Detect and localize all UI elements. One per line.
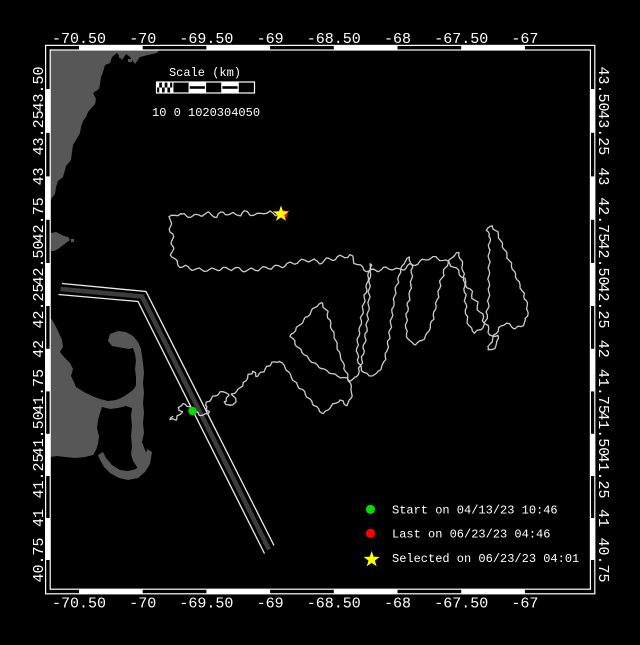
svg-text:-67.50: -67.50	[434, 596, 488, 613]
svg-text:42.75: 42.75	[594, 197, 611, 242]
svg-text:-70.50: -70.50	[52, 596, 106, 613]
svg-text:-67: -67	[511, 596, 538, 613]
svg-text:42.25: 42.25	[594, 283, 611, 328]
svg-text:42.25: 42.25	[31, 283, 48, 328]
svg-text:-68.50: -68.50	[307, 596, 361, 613]
svg-text:42: 42	[594, 340, 611, 358]
svg-text:Start on 04/13/23 10:46: Start on 04/13/23 10:46	[392, 504, 558, 518]
svg-text:41.25: 41.25	[594, 453, 611, 498]
svg-text:40.75: 40.75	[594, 537, 611, 582]
svg-text:41.75: 41.75	[594, 369, 611, 414]
svg-text:Selected on 06/23/23 04:01: Selected on 06/23/23 04:01	[392, 552, 579, 566]
svg-text:41: 41	[594, 509, 611, 527]
svg-text:-70: -70	[129, 596, 156, 613]
svg-text:43: 43	[594, 167, 611, 185]
svg-text:-67.50: -67.50	[434, 31, 488, 48]
svg-text:42: 42	[31, 340, 48, 358]
svg-text:42.75: 42.75	[31, 197, 48, 242]
svg-text:41.50: 41.50	[594, 411, 611, 456]
svg-text:43.50: 43.50	[594, 66, 611, 111]
svg-text:-69: -69	[257, 596, 284, 613]
svg-text:43.25: 43.25	[594, 110, 611, 155]
svg-text:Scale (km): Scale (km)	[169, 66, 241, 80]
svg-text:41.75: 41.75	[31, 369, 48, 414]
svg-text:-68: -68	[384, 31, 411, 48]
svg-text:41.50: 41.50	[31, 411, 48, 456]
svg-text:-67: -67	[511, 31, 538, 48]
svg-text:-69: -69	[257, 31, 284, 48]
svg-text:43.25: 43.25	[31, 110, 48, 155]
svg-text:-70: -70	[129, 31, 156, 48]
svg-text:43: 43	[31, 167, 48, 185]
svg-text:Last on 06/23/23 04:46: Last on 06/23/23 04:46	[392, 528, 550, 542]
svg-text:-70.50: -70.50	[52, 31, 106, 48]
svg-text:42.50: 42.50	[594, 240, 611, 285]
svg-text:42.50: 42.50	[31, 240, 48, 285]
svg-text:10 0 1020304050: 10 0 1020304050	[152, 106, 260, 120]
svg-text:43.50: 43.50	[31, 66, 48, 111]
svg-text:40.75: 40.75	[31, 537, 48, 582]
svg-text:-69.50: -69.50	[179, 31, 233, 48]
svg-text:-68: -68	[384, 596, 411, 613]
svg-text:-69.50: -69.50	[179, 596, 233, 613]
svg-text:41.25: 41.25	[31, 453, 48, 498]
svg-text:41: 41	[31, 509, 48, 527]
svg-text:-68.50: -68.50	[307, 31, 361, 48]
